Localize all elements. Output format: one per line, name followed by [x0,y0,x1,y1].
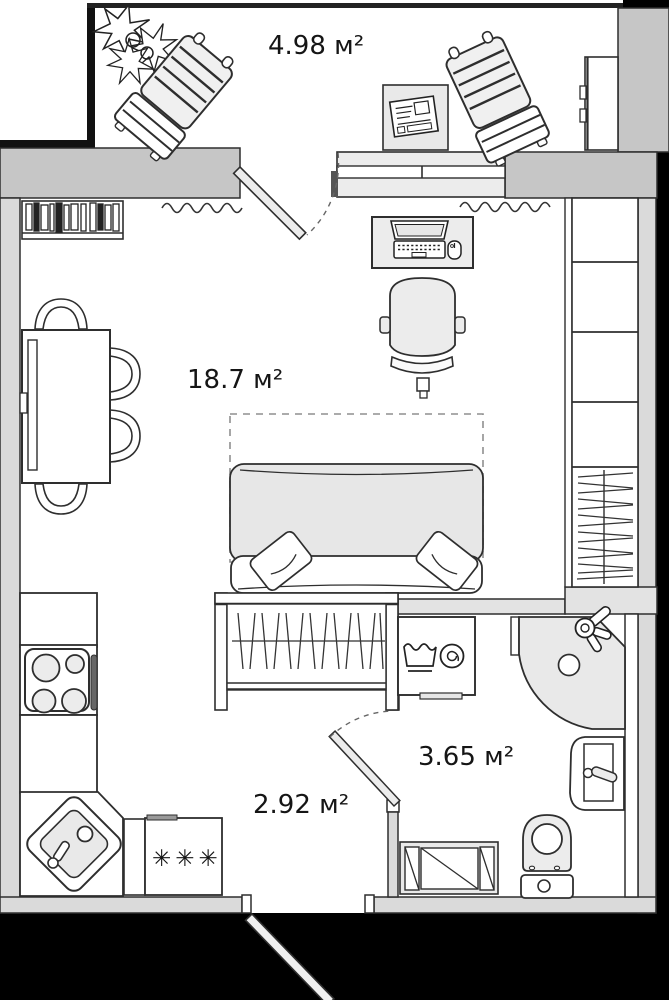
bathroom-sink-icon [570,737,624,810]
room-hallway: 2.92 м² [253,790,349,820]
laptop-icon [391,221,448,258]
magazine-icon [390,96,438,137]
balcony-side-panel [580,57,618,150]
living-room-area-label: 18.7 м² [187,365,283,395]
bathroom-area-label: 3.65 м² [418,742,514,772]
floor-plan: 4.98 м² [0,0,669,1000]
toilet-icon [521,815,573,898]
hallway-area-label: 2.92 м² [253,790,349,820]
stove-icon [20,645,97,715]
fridge-icon: ✳✳✳ [145,815,222,895]
kitchen-counter [20,593,97,647]
mouse-icon [448,241,461,259]
desk [372,217,473,268]
drain-icon [559,655,580,676]
washing-machine-icon [398,617,475,699]
kitchen-cabinet [124,819,145,895]
kitchen-counter [20,715,97,793]
balcony-area-label: 4.98 м² [268,31,364,61]
wardrobe-tall [565,198,638,587]
fridge-stars: ✳✳✳ [152,846,222,872]
kitchen-sink-icon [20,792,125,896]
side-table [383,85,448,150]
balcony-window [331,152,505,197]
bathroom-cabinet [400,842,498,894]
bookshelf-icon [22,201,123,239]
